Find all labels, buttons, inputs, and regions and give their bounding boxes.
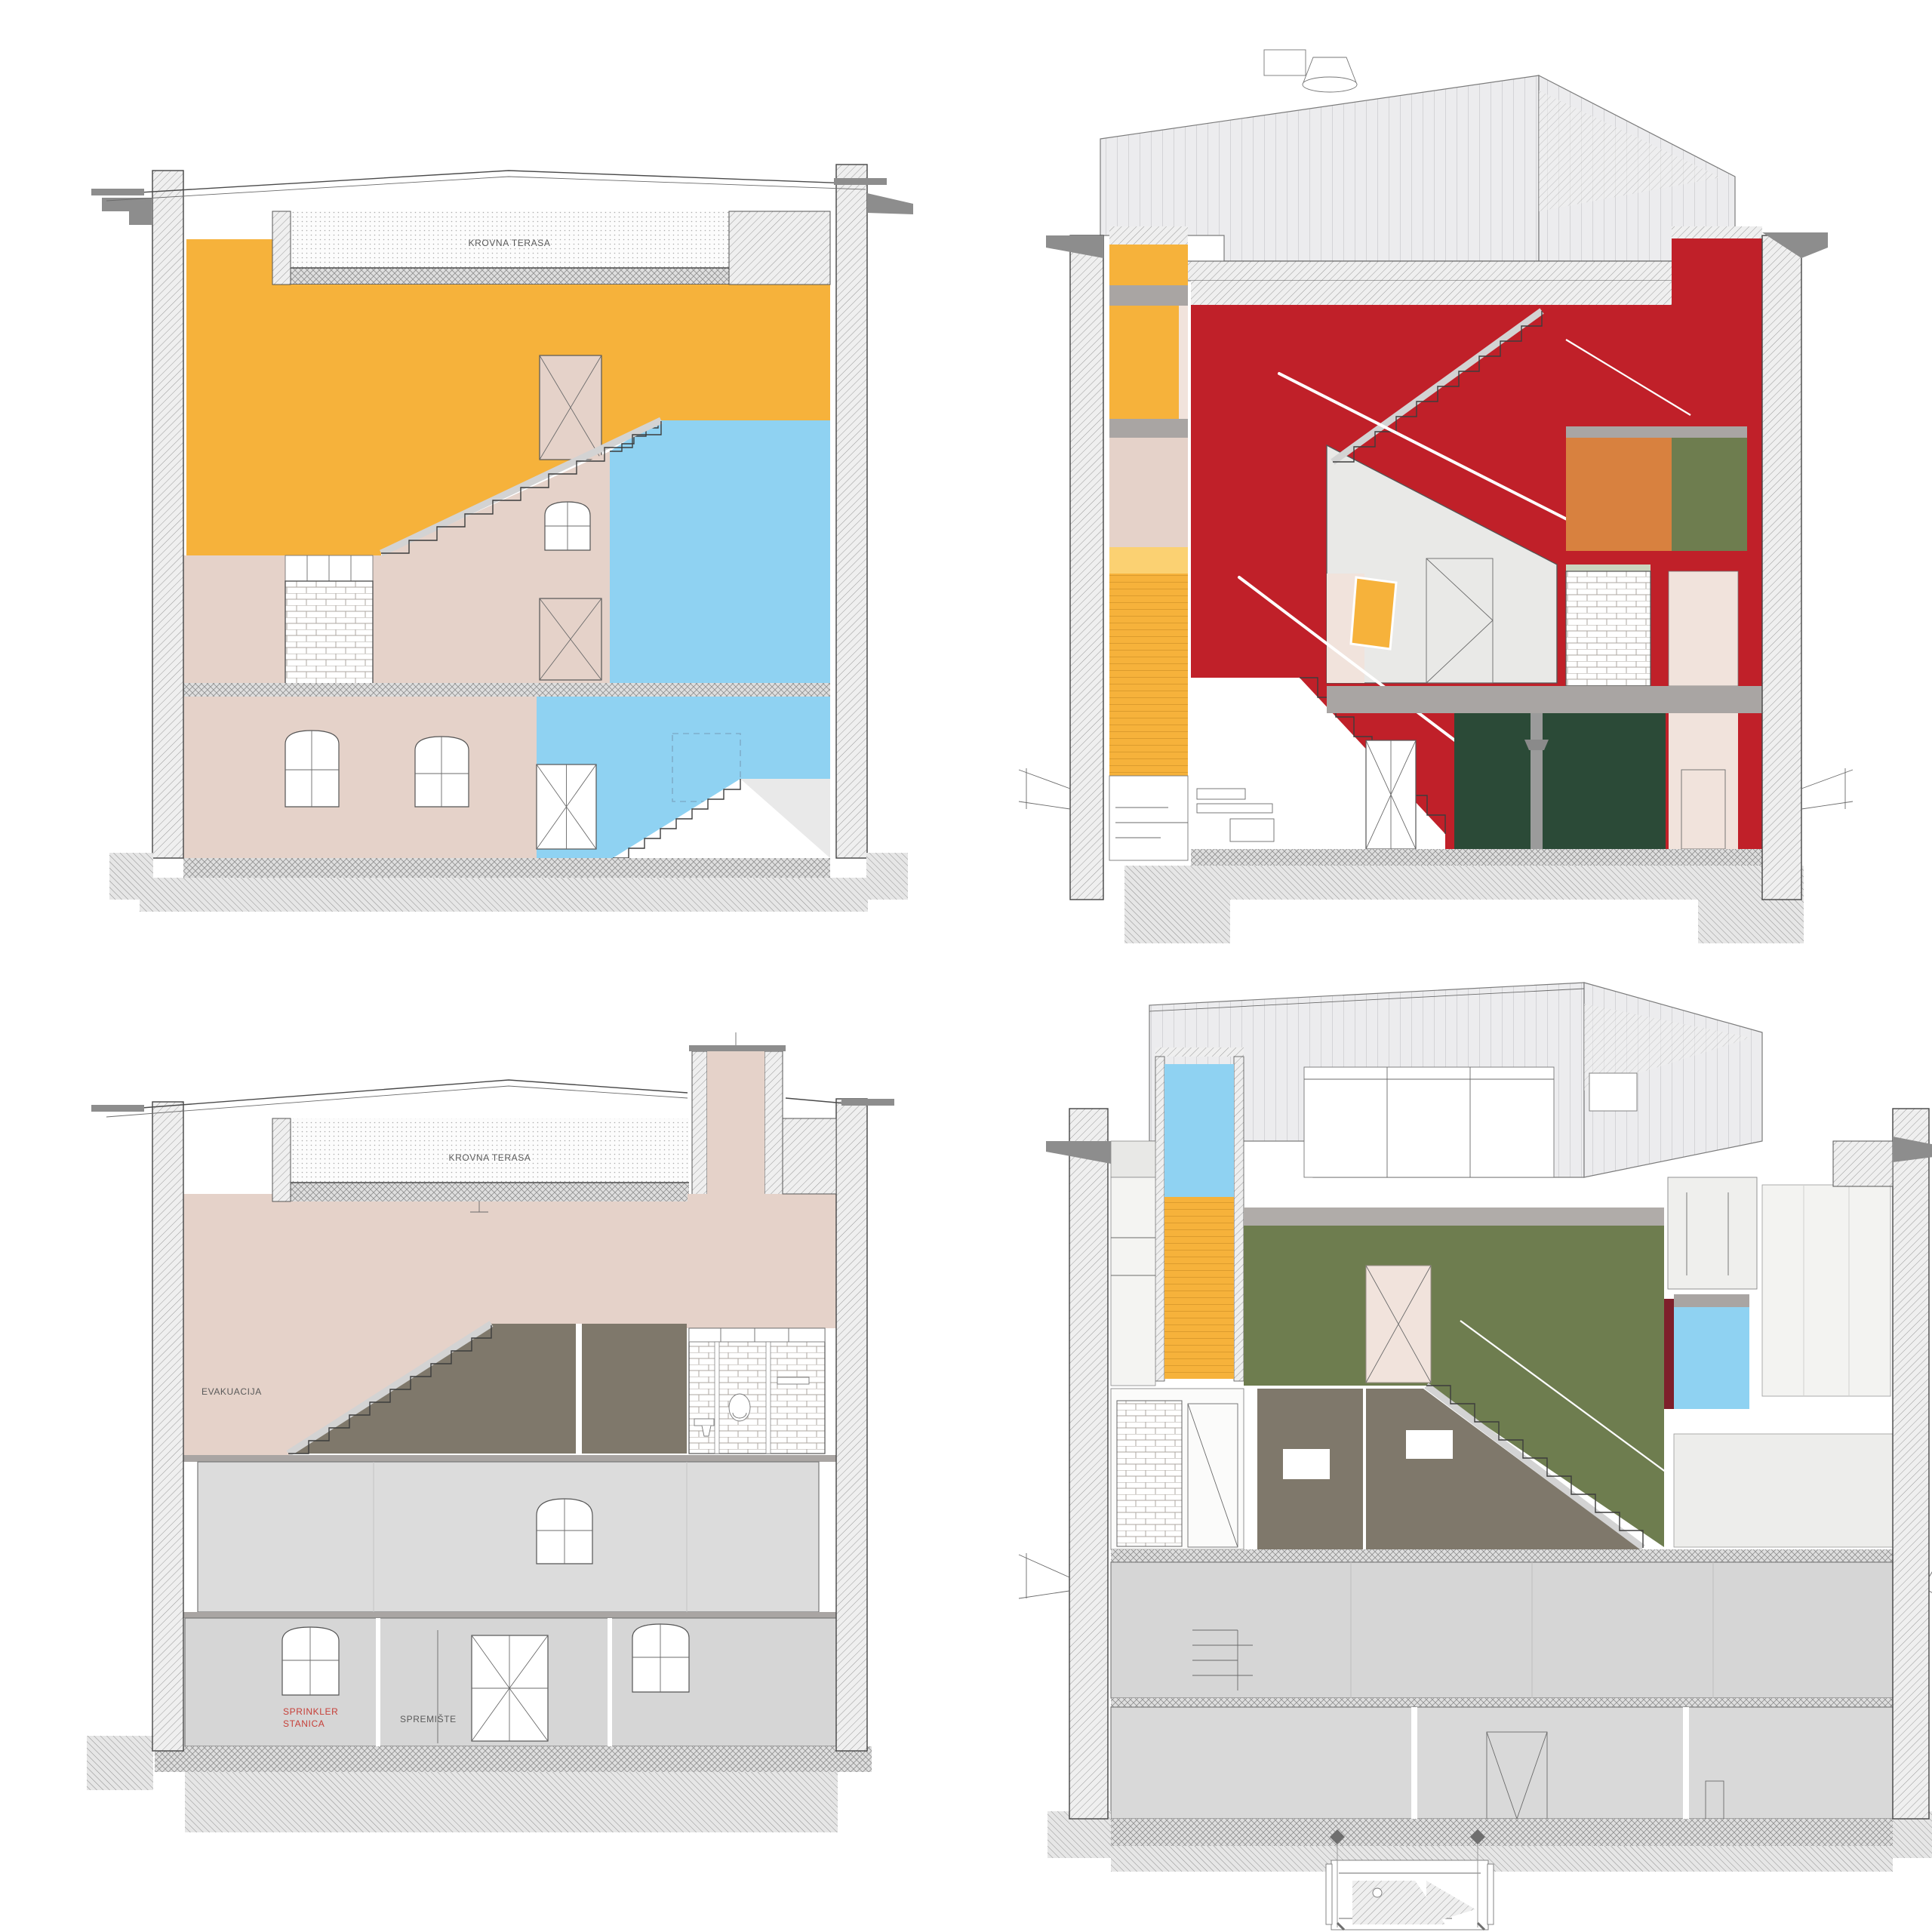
section-bottom-left-drawing: KROVNA TERASA EVAKUACIJA SPRINKLER STANI… (57, 1026, 924, 1879)
rooms-left-upper (1111, 1141, 1155, 1386)
foundation (185, 1772, 838, 1832)
rooms-right (1664, 1177, 1893, 1547)
exterior-wall-left (1069, 1109, 1108, 1819)
roof-volume (1100, 50, 1735, 261)
roofline (91, 171, 887, 201)
elevator-door-lower (540, 598, 601, 680)
roof-band (1124, 261, 1762, 281)
awning-bracket-left (1019, 1553, 1069, 1598)
ceiling-band-right (1566, 426, 1747, 438)
label-evacuation: EVAKUACIJA (202, 1386, 262, 1397)
foundation-right (1698, 900, 1804, 943)
foundation (1124, 866, 1804, 900)
room-brick (1566, 571, 1651, 686)
room-rose-lower (183, 697, 537, 858)
exterior-wall-right (836, 1099, 867, 1751)
section-bottom-right (1004, 951, 1932, 1932)
label-sprinkler-2: STANICA (283, 1718, 325, 1729)
section-bottom-left: KROVNA TERASA EVAKUACIJA SPRINKLER STANI… (57, 1026, 924, 1879)
skylight-window (1351, 577, 1396, 649)
foundation (140, 878, 868, 912)
mid-slab (1111, 1698, 1893, 1707)
elevator-door-upper (540, 355, 601, 460)
ground-slab (183, 858, 830, 878)
ground-slab (1191, 849, 1762, 866)
rooms-left-lower (1111, 1389, 1244, 1549)
label-roof-terrace: KROVNA TERASA (449, 1152, 531, 1163)
wall-base-left (109, 853, 153, 900)
roof-band-right (1672, 226, 1762, 238)
arched-window-basement-right (632, 1624, 689, 1692)
room-blue-right (1674, 1307, 1749, 1409)
room-green-hall (1244, 1226, 1664, 1386)
parapet-right (1833, 1141, 1893, 1186)
roof-band-step (1191, 281, 1672, 305)
brick-panel (285, 555, 373, 691)
ground-slab (155, 1746, 872, 1772)
upper-gray-floor (1111, 1562, 1893, 1698)
basement-door (472, 1635, 548, 1741)
awning-bracket-left (1019, 768, 1070, 809)
room-rose-right (1669, 571, 1738, 686)
roof-glazing (1304, 1067, 1554, 1177)
basement-floor (1111, 1707, 1893, 1819)
awning-bracket-right (1801, 768, 1853, 809)
room-orange (1566, 438, 1672, 551)
arched-window-left (285, 731, 339, 807)
parapet-left (272, 211, 291, 285)
foundation (1111, 1846, 1893, 1872)
stage-slab (1327, 686, 1762, 713)
cornice-left (102, 198, 152, 225)
section-top-left: KROVNA TERASA (57, 98, 921, 936)
slab-upper (183, 1455, 838, 1462)
roof-band-left (1109, 226, 1188, 245)
maroon-wall (1664, 1299, 1674, 1409)
arched-window-basement-left (282, 1627, 339, 1695)
sill-band (1566, 565, 1651, 571)
exterior-wall-right (1762, 235, 1801, 900)
mid-slab (183, 683, 830, 697)
room-forest (1454, 713, 1666, 849)
mirror (777, 1377, 809, 1384)
slab-lower (183, 1612, 838, 1618)
cornice-right (867, 193, 913, 214)
white-door-bottom (1366, 740, 1416, 849)
section-top-right (1004, 45, 1932, 951)
parapet-right (729, 211, 830, 285)
toilet (729, 1394, 750, 1421)
room-olive (1672, 438, 1747, 551)
exterior-wall-left (152, 1102, 183, 1751)
exterior-wall-right (836, 165, 867, 858)
stage-slab (1111, 1549, 1893, 1562)
ceiling-band-green (1244, 1207, 1664, 1226)
exterior-wall-left (1070, 235, 1103, 900)
section-top-left-drawing: KROVNA TERASA (57, 98, 921, 936)
foundation-left (1124, 900, 1230, 943)
arched-window-right (415, 737, 469, 807)
stair-shaft (1155, 1048, 1244, 1381)
room-rose-bottom-right (1669, 713, 1738, 849)
section-top-right-drawing (1004, 45, 1932, 951)
bathroom (689, 1328, 825, 1454)
sink (694, 1419, 714, 1426)
shaft-blue (1164, 1064, 1234, 1197)
attic-volume (198, 1462, 819, 1612)
parapet-left (272, 1118, 291, 1201)
entry-door (537, 764, 596, 849)
green-hall-door (1366, 1266, 1431, 1383)
section-bottom-right-drawing (1004, 951, 1932, 1932)
stage-wall (576, 1324, 582, 1454)
exterior-wall-right (1893, 1109, 1929, 1819)
label-sprinkler-1: SPRINKLER (283, 1706, 338, 1717)
label-roof-terrace: KROVNA TERASA (469, 238, 551, 248)
roof-skylight (1589, 1073, 1637, 1111)
exterior-wall-left (152, 171, 183, 858)
parapet-right (783, 1118, 836, 1194)
elevator-shaft (1109, 245, 1188, 860)
stair-tower (689, 1032, 786, 1195)
label-storage: SPREMIŠTE (400, 1713, 457, 1724)
roof-vent (1303, 57, 1357, 92)
foundation-left (87, 1736, 153, 1790)
ground-slab (1079, 1819, 1894, 1846)
wall-base-right (866, 853, 908, 900)
